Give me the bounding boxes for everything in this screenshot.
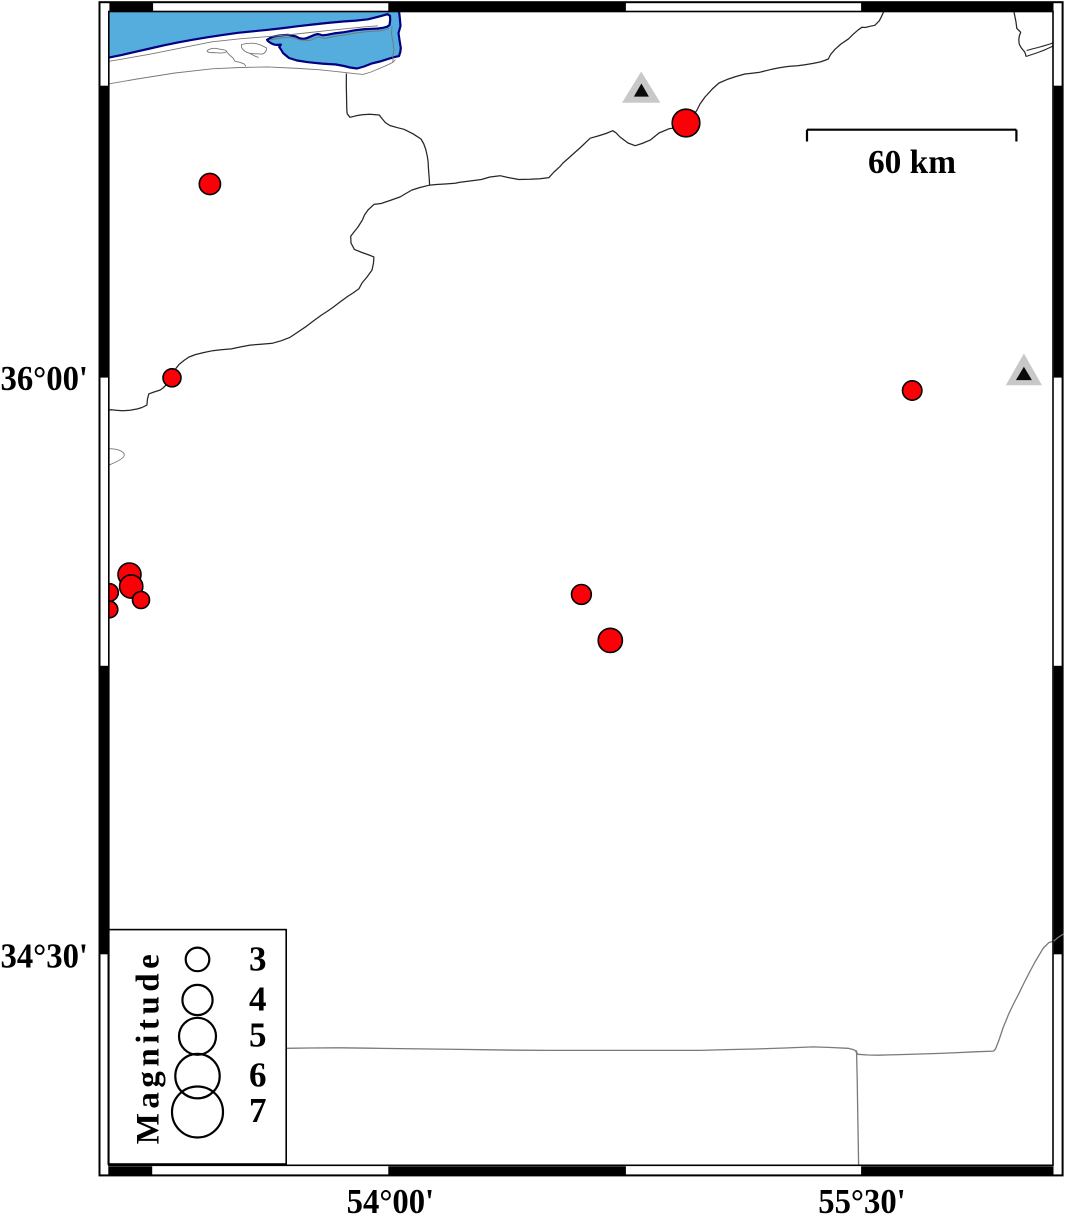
svg-text:55°30': 55°30' xyxy=(818,1182,906,1215)
svg-text:Magnitude: Magnitude xyxy=(131,950,167,1145)
svg-text:34°30': 34°30' xyxy=(1,937,89,976)
svg-text:36°00': 36°00' xyxy=(1,359,89,398)
svg-text:7: 7 xyxy=(249,1091,267,1130)
svg-text:3: 3 xyxy=(249,940,267,979)
svg-text:4: 4 xyxy=(249,979,267,1018)
svg-text:60 km: 60 km xyxy=(868,144,956,181)
svg-text:5: 5 xyxy=(249,1016,267,1055)
svg-text:6: 6 xyxy=(249,1056,267,1095)
svg-text:54°00': 54°00' xyxy=(347,1182,435,1215)
